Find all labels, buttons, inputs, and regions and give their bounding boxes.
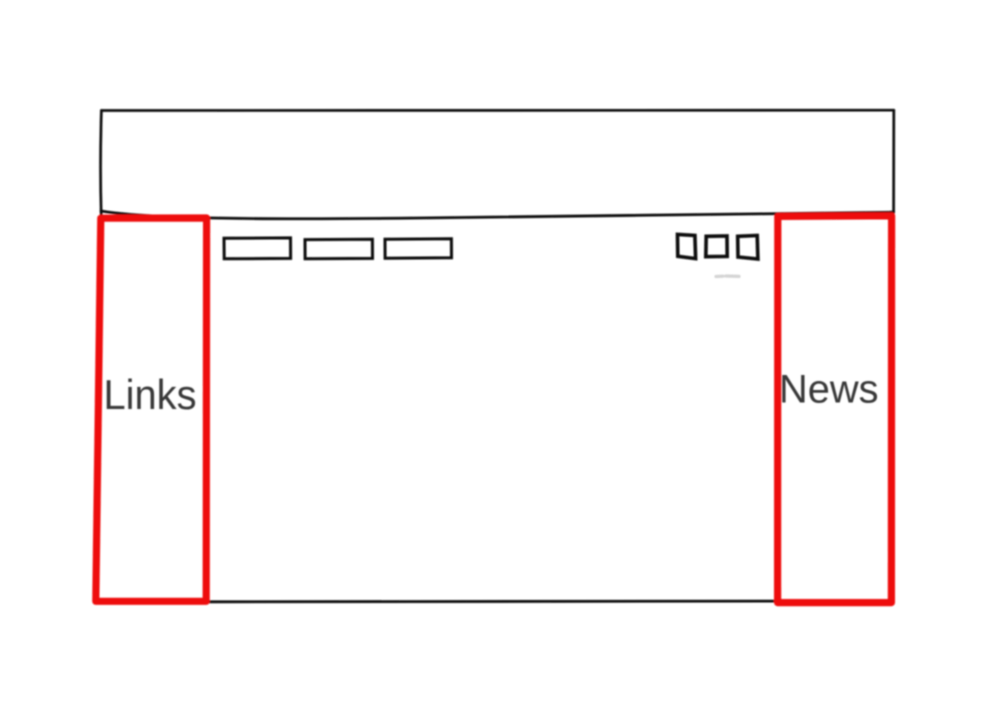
svg-text:Links: Links [104, 371, 197, 418]
svg-text:News: News [779, 367, 879, 411]
